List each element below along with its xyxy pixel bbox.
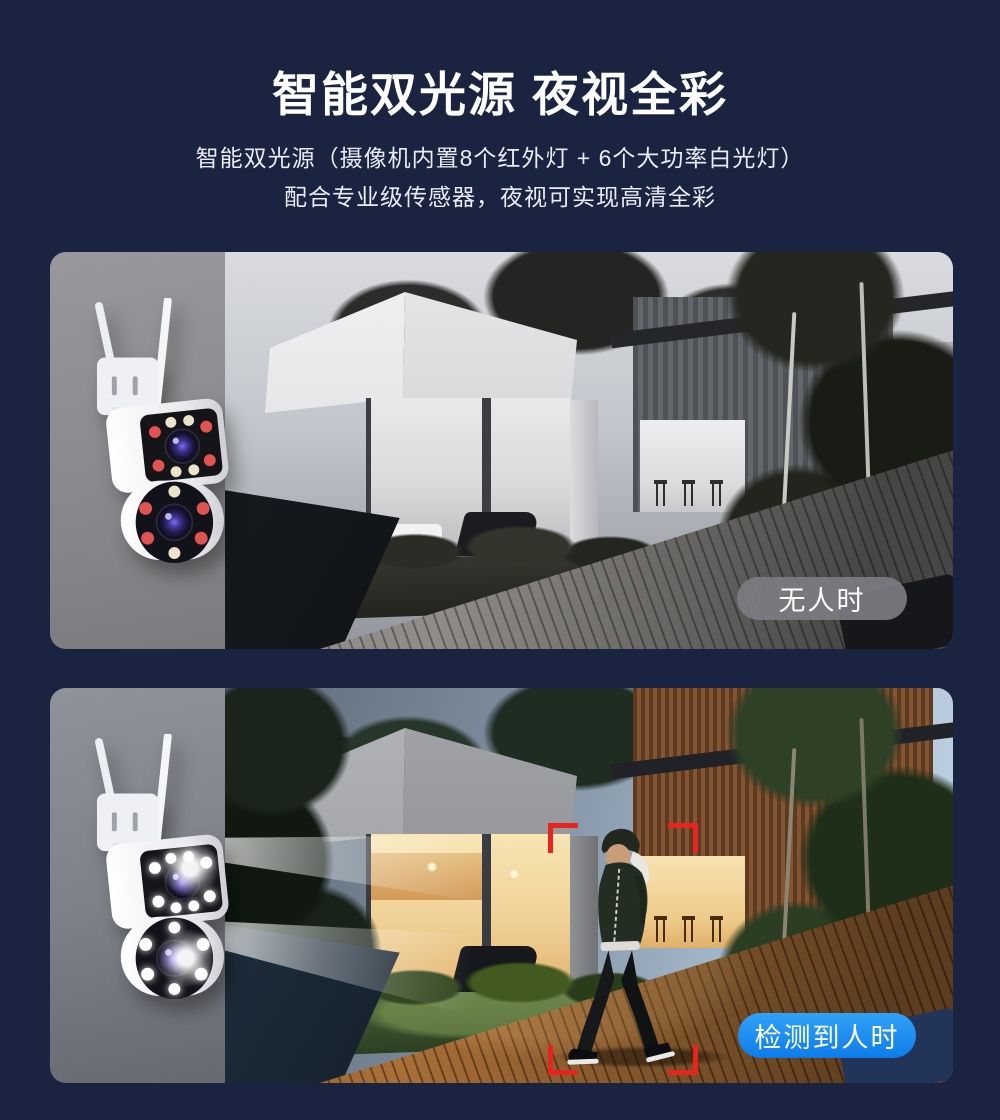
bracket-bottom-left-icon (548, 1045, 578, 1075)
subtitle-line-2: 配合专业级传感器，夜视可实现高清全彩 (0, 178, 1000, 212)
panel-night-no-person: 无人时 (50, 252, 953, 649)
lens-glow (160, 838, 220, 898)
page-title: 智能双光源 夜视全彩 (0, 56, 1000, 125)
dual-lens-camera-icon (78, 298, 243, 566)
promo-page: { "header": { "title": "智能双光源 夜视全彩", "su… (0, 0, 1000, 1120)
person-detected-tag: 检测到人时 (738, 1013, 916, 1058)
bracket-bottom-right-icon (668, 1045, 698, 1075)
panel-night-person-detected: 检测到人时 (50, 688, 953, 1083)
lens-glow (156, 928, 216, 988)
person-detection-brackets-icon (548, 823, 698, 1075)
bracket-top-left-icon (548, 823, 578, 853)
no-person-tag: 无人时 (737, 577, 907, 620)
subtitle-line-1: 智能双光源（摄像机内置8个红外灯 + 6个大功率白光灯） (0, 139, 1000, 173)
bar-stool (654, 480, 667, 506)
bracket-top-right-icon (668, 823, 698, 853)
